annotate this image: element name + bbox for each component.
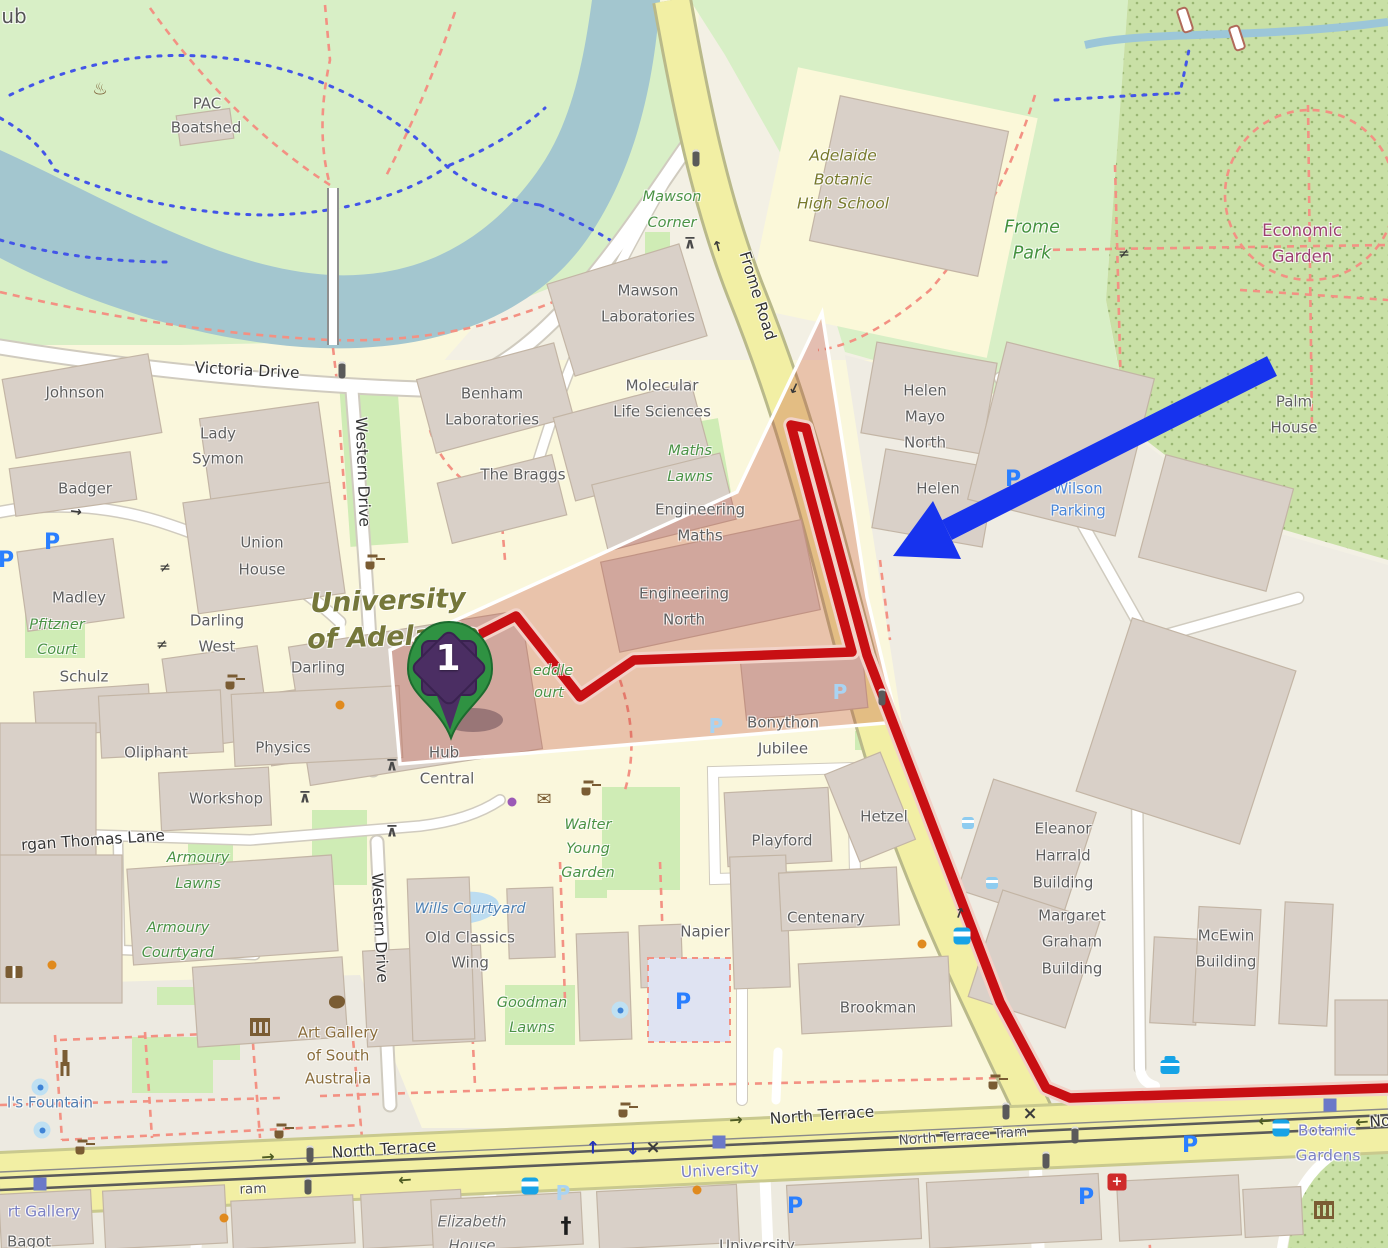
dotp-icon xyxy=(508,798,517,807)
hosp-icon: + xyxy=(1108,1174,1127,1191)
map-label: Gardens xyxy=(1296,1148,1361,1164)
map-label: Wilson xyxy=(1053,482,1102,497)
sig-icon xyxy=(1072,1127,1079,1144)
gate-icon: ≠ xyxy=(156,638,168,652)
map-label: Playford xyxy=(751,834,812,849)
map-label: Building xyxy=(1042,962,1103,977)
map-label: Schulz xyxy=(60,670,109,685)
location-marker-1[interactable]: 1 xyxy=(393,608,505,744)
fntb-icon xyxy=(32,1079,49,1096)
sig-icon xyxy=(879,689,886,706)
pic-icon: ⊼ xyxy=(386,825,398,840)
map-label: Adelaide xyxy=(809,148,876,164)
map-label: West xyxy=(199,640,236,655)
mus-icon xyxy=(1314,1201,1334,1219)
map-label: Maths xyxy=(677,529,722,544)
map-label: Darling xyxy=(190,614,244,629)
gate-icon: ≠ xyxy=(1118,247,1130,261)
sig-icon xyxy=(305,1178,312,1195)
fnt-icon xyxy=(274,1124,289,1139)
ar-icon: → xyxy=(729,1112,743,1129)
tsq-icon xyxy=(1324,1099,1337,1112)
map-label: North xyxy=(904,436,946,451)
map-label: Armoury xyxy=(147,921,210,936)
map-label: Central xyxy=(420,772,475,787)
map-label: Engineering xyxy=(655,503,745,518)
map-label: Oliphant xyxy=(124,746,188,761)
sig-icon xyxy=(339,362,346,379)
statue-icon xyxy=(63,1050,68,1066)
book-icon xyxy=(6,966,23,978)
mus-icon xyxy=(250,1018,270,1036)
busstop-icon xyxy=(986,877,998,889)
p-icon: P xyxy=(0,550,14,572)
sig-icon xyxy=(693,150,700,167)
map-label: Courtyard xyxy=(142,946,214,961)
map-label: Centenary xyxy=(787,911,865,926)
bus-icon xyxy=(522,1178,539,1195)
bus-icon xyxy=(954,928,971,945)
p-icon: P xyxy=(44,532,60,554)
map-label: House xyxy=(238,563,285,578)
fnt-icon xyxy=(75,1140,90,1155)
map-label: Jubilee xyxy=(758,742,808,757)
map-label: of South xyxy=(307,1049,370,1064)
map-label: Old Classics xyxy=(425,931,515,946)
map-label: Laboratories xyxy=(445,413,539,428)
map-label: Wills Courtyard xyxy=(414,902,525,917)
map-label: Botanic xyxy=(814,172,872,188)
arb-icon: ↓ xyxy=(626,1142,640,1159)
ar-icon: ← xyxy=(1258,1113,1272,1130)
x-icon: × xyxy=(1022,1105,1037,1123)
map-label: Badger xyxy=(58,482,112,497)
map-label: Lady xyxy=(200,427,236,442)
map-label: Bonython xyxy=(747,716,819,731)
doto-icon xyxy=(48,961,57,970)
fnt-icon xyxy=(988,1075,1003,1090)
map-label: Darling xyxy=(291,661,345,676)
mail-icon: ✉ xyxy=(536,791,551,809)
map-label: Elizabeth xyxy=(437,1215,506,1230)
pic-icon: ⊼ xyxy=(684,237,696,252)
fnt-icon xyxy=(581,781,596,796)
pic-icon: ⊼ xyxy=(299,791,311,806)
gate-icon: ≠ xyxy=(159,561,171,575)
doto-icon xyxy=(336,701,345,710)
map-label: Helen xyxy=(903,384,946,399)
map-label: l's Fountain xyxy=(7,1096,93,1111)
bbq-icon: ♨ xyxy=(92,82,107,99)
map-label: House xyxy=(1270,421,1317,436)
fnt-icon xyxy=(618,1103,633,1118)
busstop-icon xyxy=(962,817,974,829)
map-label: Economic xyxy=(1262,223,1342,240)
map-label: Garden xyxy=(1272,249,1332,266)
map-label: ub xyxy=(1,6,26,26)
marker-number: 1 xyxy=(393,638,503,679)
tsq-icon xyxy=(713,1136,726,1149)
map-label: Palm xyxy=(1276,395,1312,410)
map-label: Building xyxy=(1196,955,1257,970)
map-label: Lawns xyxy=(509,1021,555,1036)
map-label: ram xyxy=(239,1183,266,1197)
map-label: Building xyxy=(1033,876,1094,891)
map-label: Court xyxy=(37,643,77,658)
arb-icon: ↑ xyxy=(586,1141,600,1158)
map-label: Harrald xyxy=(1035,849,1090,864)
map-label: Garden xyxy=(561,866,614,881)
map-label: ourt xyxy=(534,686,564,701)
map-label: Brookman xyxy=(840,1001,916,1016)
map-label: No xyxy=(1369,1114,1388,1131)
map-label: Hub xyxy=(429,746,459,761)
map-label: Wing xyxy=(451,956,489,971)
map-label: The Braggs xyxy=(480,468,565,483)
map-label: Hetzel xyxy=(860,810,908,825)
fnt-icon xyxy=(365,555,380,570)
doto-icon xyxy=(918,940,927,949)
map-label: Art Gallery xyxy=(298,1026,379,1041)
map-label: Mawson xyxy=(643,190,702,205)
p-icon: P xyxy=(1005,469,1021,491)
map-label: Goodman xyxy=(497,996,567,1011)
map-label: Life Sciences xyxy=(613,405,711,420)
map-label: Young xyxy=(566,842,610,857)
ar-icon: → xyxy=(261,1149,275,1166)
p-icon: P xyxy=(1078,1187,1094,1209)
map-label: Lawns xyxy=(175,877,221,892)
tsq-icon xyxy=(34,1178,47,1191)
map-label: Botanic xyxy=(1298,1123,1356,1139)
fntb-icon xyxy=(612,1002,629,1019)
map-label: Western Drive xyxy=(352,417,371,527)
fnt-icon xyxy=(225,675,240,690)
map-label: Armoury xyxy=(167,851,230,866)
map-label: Parking xyxy=(1050,504,1106,519)
map-label: Benham xyxy=(461,387,523,402)
map-label: Mayo xyxy=(905,410,945,425)
p-icon: P xyxy=(787,1196,803,1218)
map-label: Symon xyxy=(192,452,244,467)
map-label: Lawns xyxy=(667,470,713,485)
ar-icon: ← xyxy=(398,1172,412,1189)
map-label: Pfitzner xyxy=(29,618,84,633)
ard-icon: → xyxy=(69,504,83,519)
map-label: Molecular xyxy=(626,379,699,394)
map-label: Australia xyxy=(305,1072,371,1087)
map-label: Laboratories xyxy=(601,310,695,325)
map-label: Maths xyxy=(668,444,712,459)
map-label: eddle xyxy=(533,664,573,679)
map-label: Walter xyxy=(564,818,611,833)
fntb-icon xyxy=(34,1122,51,1139)
map-label: North xyxy=(663,613,705,628)
ar-icon: ← xyxy=(1355,1114,1369,1131)
doto-icon xyxy=(220,1214,229,1223)
pic-icon: ⊼ xyxy=(386,759,398,774)
map-label: Engineering xyxy=(639,587,729,602)
map-label: rt Gallery xyxy=(8,1204,81,1220)
map-label: Helen xyxy=(916,482,959,497)
map-label: McEwin xyxy=(1198,929,1255,944)
map-label: Margaret xyxy=(1038,909,1106,924)
church-icon: † xyxy=(561,1216,572,1238)
map-label: Johnson xyxy=(45,386,104,401)
map-label: Mawson xyxy=(618,284,679,299)
map-label: Park xyxy=(1013,245,1052,263)
map-label: High School xyxy=(797,196,889,212)
map-label: Eleanor xyxy=(1035,822,1092,837)
pl-icon: P xyxy=(833,682,848,702)
x-icon: × xyxy=(645,1139,660,1157)
map-label: PAC xyxy=(193,97,222,112)
map-label: Workshop xyxy=(189,792,263,807)
map-label: Boatshed xyxy=(171,121,242,136)
map-label: University xyxy=(719,1239,795,1248)
pl-icon: P xyxy=(556,1183,571,1203)
map-label: Union xyxy=(240,536,283,551)
map-label: Physics xyxy=(255,741,310,756)
sig-icon xyxy=(1043,1152,1050,1169)
pl-icon: P xyxy=(709,716,724,736)
map-label: Napier xyxy=(680,925,730,940)
map-label: Graham xyxy=(1042,935,1102,950)
sig-icon xyxy=(1003,1103,1010,1120)
map-label: House xyxy=(448,1239,495,1248)
map-label: Bagot xyxy=(7,1235,51,1248)
map-label: Corner xyxy=(647,216,696,231)
doto-icon xyxy=(693,1186,702,1195)
sig-icon xyxy=(307,1146,314,1163)
p-icon: P xyxy=(675,992,691,1014)
taxi-icon xyxy=(1161,1060,1180,1074)
bus-icon xyxy=(1273,1120,1290,1137)
map-label: Madley xyxy=(52,591,106,606)
map-canvas[interactable]: ubPACBoatshedVictoria DriveJohnsonLadySy… xyxy=(0,0,1388,1248)
p-icon: P xyxy=(1182,1135,1198,1157)
map-label: Frome xyxy=(1004,219,1060,237)
